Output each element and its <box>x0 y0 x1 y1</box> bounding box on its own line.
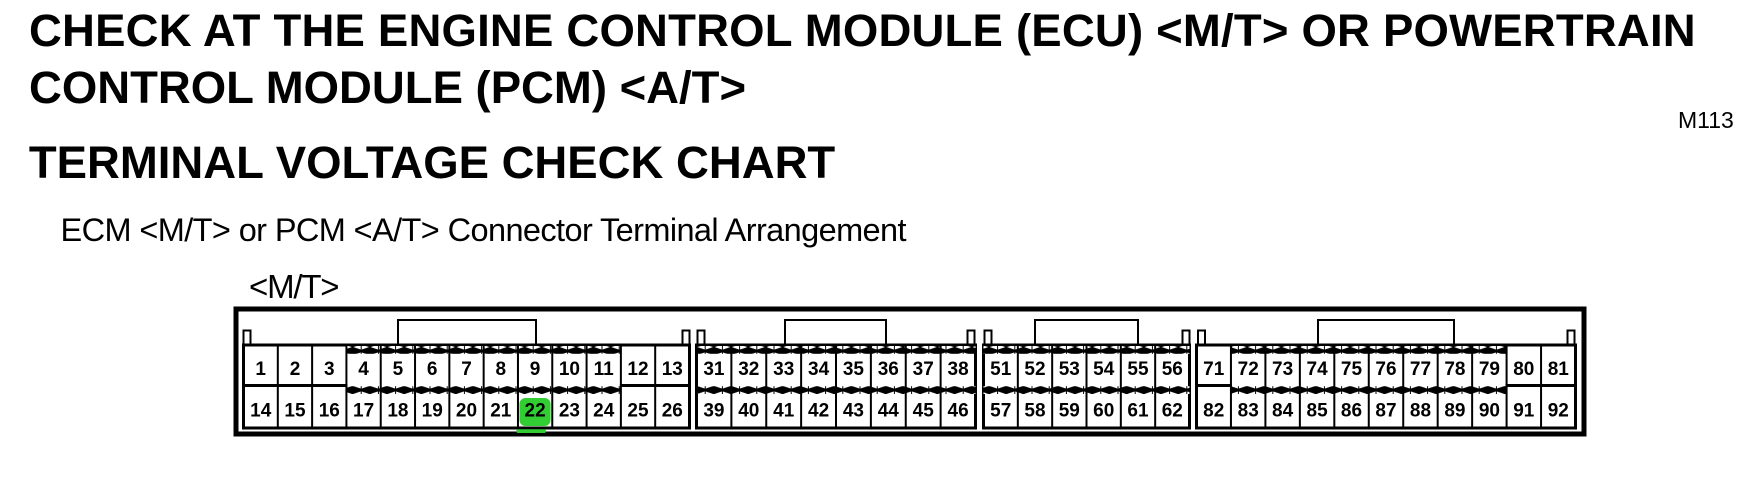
svg-text:1: 1 <box>255 359 266 380</box>
svg-text:55: 55 <box>1127 359 1149 380</box>
svg-text:72: 72 <box>1238 359 1259 380</box>
svg-text:2: 2 <box>290 359 301 380</box>
svg-text:32: 32 <box>738 359 759 380</box>
svg-text:4: 4 <box>358 359 369 380</box>
svg-text:40: 40 <box>738 401 759 422</box>
svg-text:16: 16 <box>319 401 340 422</box>
svg-text:61: 61 <box>1127 401 1149 422</box>
svg-text:51: 51 <box>990 359 1012 380</box>
svg-text:90: 90 <box>1479 401 1500 422</box>
svg-text:53: 53 <box>1059 359 1080 380</box>
svg-text:56: 56 <box>1162 359 1183 380</box>
svg-text:43: 43 <box>843 401 864 422</box>
svg-text:9: 9 <box>530 359 541 380</box>
svg-text:21: 21 <box>490 401 512 422</box>
svg-text:46: 46 <box>948 401 969 422</box>
svg-text:44: 44 <box>878 401 900 422</box>
svg-text:71: 71 <box>1203 359 1225 380</box>
svg-text:38: 38 <box>948 359 969 380</box>
svg-text:79: 79 <box>1479 359 1500 380</box>
svg-text:58: 58 <box>1024 401 1045 422</box>
svg-text:78: 78 <box>1444 359 1465 380</box>
svg-text:62: 62 <box>1162 401 1183 422</box>
svg-text:23: 23 <box>559 401 580 422</box>
svg-text:37: 37 <box>913 359 934 380</box>
svg-text:73: 73 <box>1272 359 1293 380</box>
svg-text:45: 45 <box>913 401 935 422</box>
svg-text:39: 39 <box>703 401 724 422</box>
svg-text:54: 54 <box>1093 359 1115 380</box>
svg-text:59: 59 <box>1059 401 1080 422</box>
svg-text:10: 10 <box>559 359 580 380</box>
svg-text:33: 33 <box>773 359 794 380</box>
svg-text:42: 42 <box>808 401 829 422</box>
svg-text:24: 24 <box>593 401 615 422</box>
svg-text:13: 13 <box>662 359 683 380</box>
svg-text:12: 12 <box>627 359 648 380</box>
svg-text:41: 41 <box>773 401 795 422</box>
svg-text:52: 52 <box>1024 359 1045 380</box>
svg-text:34: 34 <box>808 359 830 380</box>
svg-text:36: 36 <box>878 359 899 380</box>
svg-text:80: 80 <box>1513 359 1534 380</box>
svg-text:84: 84 <box>1272 401 1294 422</box>
svg-text:6: 6 <box>427 359 438 380</box>
svg-text:81: 81 <box>1548 359 1570 380</box>
svg-text:75: 75 <box>1341 359 1363 380</box>
svg-text:86: 86 <box>1341 401 1362 422</box>
svg-text:77: 77 <box>1410 359 1431 380</box>
svg-text:3: 3 <box>324 359 335 380</box>
svg-text:11: 11 <box>594 359 615 380</box>
svg-text:22: 22 <box>525 401 546 422</box>
svg-text:14: 14 <box>250 401 272 422</box>
svg-text:17: 17 <box>353 401 374 422</box>
svg-text:85: 85 <box>1307 401 1329 422</box>
svg-text:87: 87 <box>1375 401 1396 422</box>
svg-text:19: 19 <box>422 401 443 422</box>
svg-text:92: 92 <box>1548 401 1569 422</box>
svg-text:82: 82 <box>1203 401 1224 422</box>
svg-text:60: 60 <box>1093 401 1114 422</box>
svg-text:8: 8 <box>496 359 507 380</box>
svg-text:7: 7 <box>461 359 472 380</box>
svg-text:18: 18 <box>387 401 408 422</box>
svg-text:91: 91 <box>1513 401 1535 422</box>
svg-text:74: 74 <box>1307 359 1329 380</box>
svg-text:20: 20 <box>456 401 477 422</box>
svg-text:76: 76 <box>1375 359 1396 380</box>
svg-text:35: 35 <box>843 359 865 380</box>
svg-text:25: 25 <box>627 401 649 422</box>
svg-text:88: 88 <box>1410 401 1431 422</box>
svg-text:5: 5 <box>393 359 404 380</box>
svg-text:15: 15 <box>284 401 306 422</box>
svg-text:57: 57 <box>990 401 1011 422</box>
svg-text:26: 26 <box>662 401 683 422</box>
svg-text:31: 31 <box>703 359 725 380</box>
svg-text:89: 89 <box>1444 401 1465 422</box>
svg-text:83: 83 <box>1238 401 1259 422</box>
